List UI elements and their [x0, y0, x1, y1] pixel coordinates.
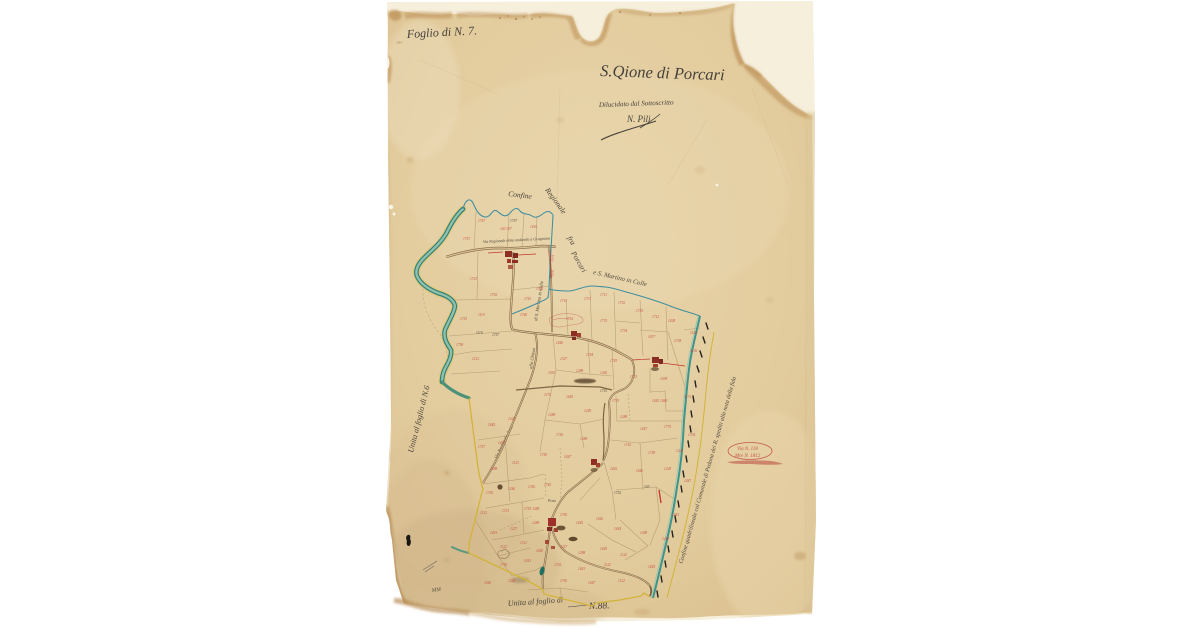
svg-text:1747: 1747 — [478, 219, 485, 223]
svg-text:1752: 1752 — [614, 491, 621, 495]
svg-text:1445: 1445 — [648, 565, 655, 569]
svg-text:1311: 1311 — [520, 541, 527, 545]
svg-text:1334: 1334 — [688, 433, 695, 437]
svg-text:1756: 1756 — [556, 433, 563, 437]
svg-text:1122: 1122 — [500, 545, 507, 549]
svg-text:1712: 1712 — [652, 315, 659, 319]
svg-text:1110: 1110 — [476, 331, 483, 335]
svg-text:1740: 1740 — [520, 313, 527, 317]
svg-text:1757: 1757 — [463, 237, 470, 241]
svg-text:1752: 1752 — [624, 443, 631, 447]
svg-text:1444: 1444 — [614, 527, 621, 531]
svg-text:1752: 1752 — [618, 301, 625, 305]
svg-text:1122: 1122 — [604, 563, 611, 567]
svg-text:103: 103 — [396, 40, 402, 45]
svg-text:1212: 1212 — [472, 357, 479, 361]
svg-text:1440: 1440 — [636, 469, 643, 473]
svg-text:1447: 1447 — [588, 581, 595, 585]
svg-text:Via N. 118: Via N. 118 — [737, 447, 758, 452]
svg-text:1750: 1750 — [560, 579, 567, 583]
svg-text:1757: 1757 — [510, 219, 517, 223]
svg-text:1350: 1350 — [528, 485, 535, 489]
svg-text:1122: 1122 — [620, 553, 627, 557]
svg-text:1723: 1723 — [470, 277, 477, 281]
svg-text:1445: 1445 — [484, 581, 491, 585]
svg-text:1438: 1438 — [660, 377, 667, 381]
svg-text:1442: 1442 — [596, 517, 603, 521]
svg-text:1743: 1743 — [524, 297, 531, 301]
svg-text:1447: 1447 — [684, 479, 691, 483]
svg-text:140 107: 140 107 — [500, 227, 512, 231]
svg-text:1257: 1257 — [510, 527, 517, 531]
svg-text:N. Pilj: N. Pilj — [626, 114, 651, 124]
svg-text:1440: 1440 — [536, 549, 543, 553]
svg-text:1445: 1445 — [566, 395, 573, 399]
svg-text:1750: 1750 — [500, 563, 507, 567]
svg-text:1716: 1716 — [566, 317, 573, 321]
svg-text:1447: 1447 — [564, 455, 571, 459]
svg-text:1249: 1249 — [584, 409, 591, 413]
svg-text:1288: 1288 — [490, 467, 497, 471]
svg-text:1288: 1288 — [548, 413, 555, 417]
svg-text:1222: 1222 — [508, 579, 515, 583]
svg-text:1757: 1757 — [492, 333, 499, 337]
svg-text:1445: 1445 — [600, 547, 607, 551]
svg-text:1713: 1713 — [600, 293, 607, 297]
svg-text:Mre N. 1812: Mre N. 1812 — [734, 454, 761, 459]
svg-text:1236: 1236 — [690, 349, 697, 353]
svg-text:1733: 1733 — [600, 319, 607, 323]
svg-text:1110: 1110 — [478, 313, 485, 317]
svg-text:1332: 1332 — [554, 563, 561, 567]
svg-text:1288: 1288 — [578, 551, 585, 555]
svg-text:1753: 1753 — [600, 389, 607, 393]
svg-text:1445: 1445 — [576, 521, 583, 525]
svg-text:1288: 1288 — [640, 531, 647, 535]
svg-text:1170: 1170 — [544, 393, 551, 397]
svg-text:1758: 1758 — [456, 343, 463, 347]
svg-text:1745: 1745 — [544, 483, 551, 487]
svg-text:1288: 1288 — [576, 369, 583, 373]
svg-text:1746: 1746 — [536, 287, 543, 291]
svg-text:1331: 1331 — [502, 509, 509, 513]
svg-text:1731: 1731 — [584, 297, 591, 301]
svg-text:1758: 1758 — [648, 451, 655, 455]
svg-text:1338: 1338 — [674, 339, 681, 343]
svg-text:1775: 1775 — [664, 425, 671, 429]
svg-text:1288: 1288 — [532, 521, 539, 525]
svg-text:1445: 1445 — [488, 423, 495, 427]
svg-text:1220: 1220 — [676, 449, 683, 453]
svg-text:103: 103 — [644, 485, 650, 489]
svg-text:1441: 1441 — [524, 559, 531, 563]
svg-text:1753: 1753 — [630, 375, 637, 379]
svg-text:1445 1448: 1445 1448 — [652, 399, 667, 403]
svg-text:1440: 1440 — [556, 341, 563, 345]
svg-text:1410: 1410 — [530, 225, 537, 229]
svg-text:1122: 1122 — [618, 579, 625, 583]
svg-text:1428: 1428 — [668, 319, 675, 323]
svg-text:1148: 1148 — [690, 331, 697, 335]
svg-text:1752: 1752 — [490, 293, 497, 297]
svg-text:1744: 1744 — [586, 353, 593, 357]
svg-text:1257: 1257 — [560, 545, 567, 549]
svg-text:1750: 1750 — [486, 491, 493, 495]
svg-text:1715: 1715 — [560, 299, 567, 303]
svg-text:1750: 1750 — [540, 453, 547, 457]
svg-text:1288: 1288 — [662, 537, 669, 541]
svg-text:1228: 1228 — [664, 467, 671, 471]
svg-text:1750: 1750 — [560, 513, 567, 517]
svg-text:1122: 1122 — [480, 511, 487, 515]
svg-text:1442: 1442 — [610, 467, 617, 471]
svg-text:1288: 1288 — [580, 437, 587, 441]
svg-text:1246: 1246 — [508, 487, 515, 491]
svg-text:1441: 1441 — [490, 531, 497, 535]
svg-text:1755 1288: 1755 1288 — [524, 507, 539, 511]
svg-text:1441: 1441 — [578, 567, 585, 571]
svg-text:1288: 1288 — [620, 415, 627, 419]
svg-text:1441: 1441 — [672, 513, 679, 517]
svg-text:1733: 1733 — [612, 399, 619, 403]
svg-text:1753: 1753 — [460, 317, 467, 321]
svg-text:1222: 1222 — [508, 417, 515, 421]
svg-text:1447: 1447 — [498, 441, 505, 445]
svg-text:1734: 1734 — [620, 329, 627, 333]
svg-text:1447: 1447 — [640, 427, 647, 431]
svg-text:Prato: Prato — [547, 499, 556, 503]
svg-text:1100: 1100 — [548, 371, 555, 375]
svg-text:1437: 1437 — [648, 335, 655, 339]
svg-text:1745: 1745 — [610, 359, 617, 363]
svg-text:1757: 1757 — [478, 445, 485, 449]
svg-text:1327: 1327 — [560, 357, 567, 361]
svg-text:1731: 1731 — [684, 395, 691, 399]
svg-text:1282: 1282 — [600, 371, 607, 375]
svg-text:1123: 1123 — [512, 461, 519, 465]
svg-text:1755: 1755 — [636, 309, 643, 313]
